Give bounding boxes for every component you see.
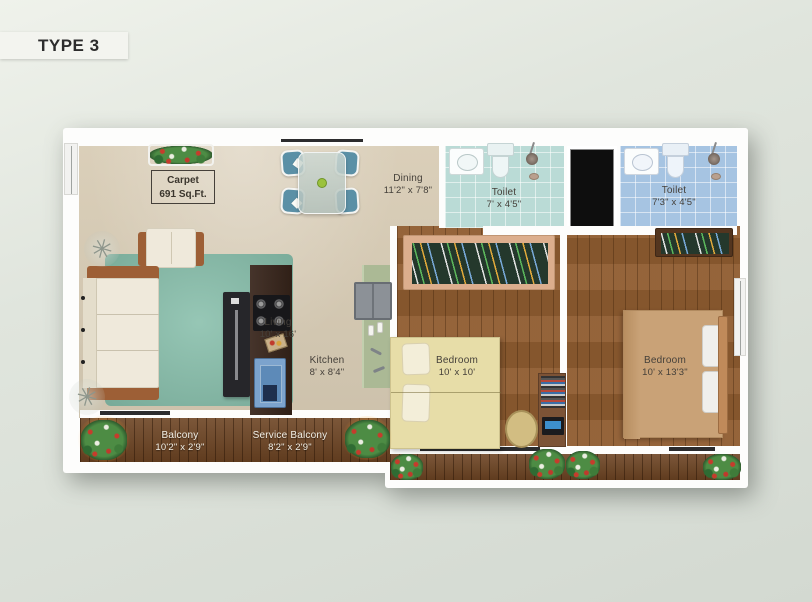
sliding-door-bedroom2: [669, 447, 715, 451]
sink-basin-oval: [632, 154, 653, 171]
sliding-door-living: [100, 411, 170, 415]
room-dims: 10' x 10': [436, 367, 478, 379]
sofa-backrest: [83, 278, 97, 388]
room-name: Toilet: [487, 186, 522, 199]
room-name: Kitchen: [310, 354, 345, 367]
shower-head: [708, 153, 720, 165]
flower-planter: [703, 454, 741, 480]
stove-burner: [274, 299, 284, 309]
room-name: Dining: [384, 172, 433, 185]
room-name: Toilet: [652, 184, 696, 197]
sofa-cushion-seam: [97, 314, 159, 315]
room-dims: 10' x 16': [260, 329, 297, 341]
sink-basin-oval: [457, 154, 478, 171]
study-desk: [538, 373, 566, 447]
wall-dining-toilet: [439, 146, 445, 228]
room-dims: 8'2" x 2'9": [253, 442, 328, 454]
bed-pillow: [401, 343, 430, 376]
armchair-seam: [171, 232, 172, 264]
dining-label: Dining 11'2" x 7'8": [384, 172, 433, 197]
tv-speaker: [231, 298, 239, 304]
service-balcony-label: Service Balcony 8'2" x 2'9": [253, 429, 328, 454]
flower-planter: [345, 420, 390, 458]
tv-unit: [223, 292, 250, 397]
utensil: [370, 347, 382, 355]
carpet-area-box: Carpet 691 Sq.Ft.: [151, 170, 215, 204]
toilet-sink: [449, 148, 484, 175]
laptop-screen: [545, 421, 561, 429]
soap: [529, 173, 539, 180]
toilet-2-label: Toilet 7'3" x 4'5": [652, 184, 696, 209]
bedroom-2-label: Bedroom 10' x 13'3": [642, 354, 688, 379]
bed-headboard: [718, 316, 728, 434]
wardrobe-shelf: [655, 228, 733, 257]
wardrobe-shelf: [403, 235, 555, 290]
room-dims: 11'2" x 7'8": [384, 185, 433, 197]
window-rail: [740, 281, 741, 355]
bottle: [377, 322, 383, 333]
room-dims: 8' x 8'4": [310, 367, 345, 379]
room-name: Living: [260, 316, 297, 329]
utensil: [373, 366, 385, 373]
toilet-wc-tank: [662, 143, 689, 156]
flower-planter: [566, 451, 600, 479]
bed-pillow: [401, 384, 430, 423]
kitchen-label: Kitchen 8' x 8'4": [310, 354, 345, 379]
window-right-wall: [734, 278, 746, 356]
sofa-stud: [81, 296, 85, 300]
toilet-wc-tank: [487, 143, 514, 156]
stove-burner: [256, 299, 266, 309]
carpet-area-value: 691 Sq.Ft.: [152, 188, 214, 202]
shelf-books: [412, 243, 548, 284]
toilet-wc-bowl: [667, 156, 684, 178]
sofa-stud: [81, 360, 85, 364]
tv-screen-slot: [235, 310, 238, 380]
shower-head: [526, 153, 538, 165]
room-dims: 10'2" x 2'9": [155, 442, 204, 454]
sink-drain-box: [263, 385, 277, 401]
toilet-wc-bowl: [492, 156, 509, 178]
sofa: [83, 266, 165, 400]
flower-planter: [391, 454, 423, 480]
desk-chair: [505, 410, 538, 448]
room-dims: 10' x 13'3": [642, 367, 688, 379]
entrance-door-line: [281, 139, 363, 142]
window-left-wall: [64, 143, 78, 195]
room-name: Service Balcony: [253, 429, 328, 442]
room-dims: 7' x 4'5": [487, 199, 522, 211]
flower-planter: [529, 449, 565, 479]
toilet-1-label: Toilet 7' x 4'5": [487, 186, 522, 211]
bedroom-1-label: Bedroom 10' x 10': [436, 354, 478, 379]
blanket-fold: [624, 311, 640, 439]
window-flower-box: [148, 144, 214, 166]
fridge-door-split: [372, 284, 374, 318]
room-dims: 7'3" x 4'5": [652, 197, 696, 209]
bedroom-balcony-floor: [390, 454, 740, 480]
soap: [711, 173, 721, 180]
toilet-sink: [624, 148, 659, 175]
bottle: [368, 325, 374, 336]
sofa-stud: [81, 328, 85, 332]
room-name: Bedroom: [436, 354, 478, 367]
balcony-label: Balcony 10'2" x 2'9": [155, 429, 204, 454]
window-rail: [71, 146, 72, 194]
duct-shaft: [567, 146, 617, 231]
desk-books: [541, 376, 565, 408]
page-title: TYPE 3: [0, 32, 128, 59]
floor-plan: Carpet 691 Sq.Ft. ✳ ✳: [63, 128, 748, 490]
table-bowl: [317, 178, 327, 188]
bed-seam: [391, 392, 501, 393]
kitchen-sink-cabinet: [254, 358, 286, 408]
refrigerator: [354, 282, 392, 320]
shelf-books: [661, 233, 729, 254]
armchair: [138, 228, 204, 268]
room-name: Balcony: [155, 429, 204, 442]
sofa-cushion-seam: [97, 350, 159, 351]
living-label: Living 10' x 16': [260, 316, 297, 341]
flower-planter: [81, 420, 127, 460]
carpet-label: Carpet: [152, 174, 214, 188]
room-name: Bedroom: [642, 354, 688, 367]
type-label-band: TYPE 3: [0, 32, 128, 59]
laptop: [542, 417, 564, 435]
